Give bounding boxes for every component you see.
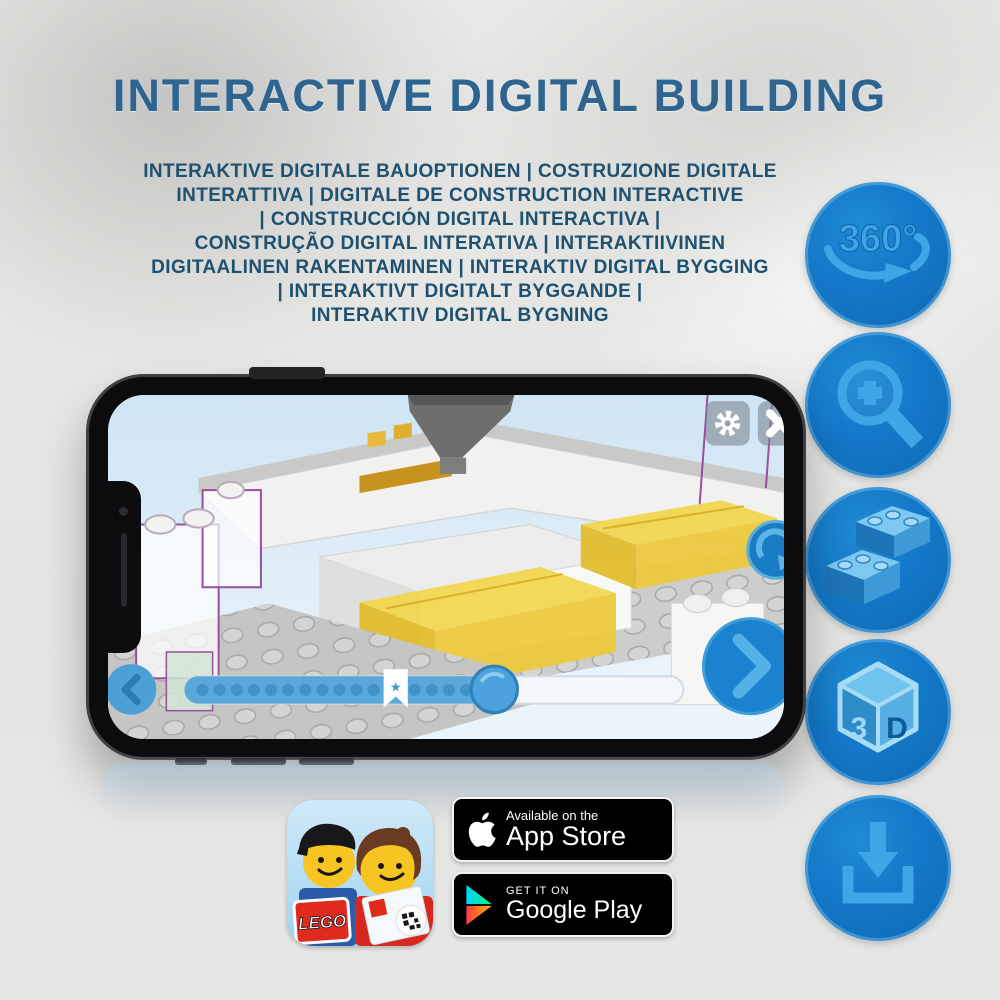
next-button[interactable] (704, 619, 784, 714)
lego-bricks-icon (818, 500, 938, 620)
subtitle-line: CONSTRUÇÃO DIGITAL INTERATIVA | INTERAKT… (110, 232, 810, 256)
subtitle-line: INTERAKTIVE DIGITALE BAUOPTIONEN | COSTR… (110, 160, 810, 184)
poster-canvas: INTERACTIVE DIGITAL BUILDING INTERAKTIVE… (0, 0, 1000, 1000)
zoom-in-icon (818, 345, 938, 465)
google-play-icon (454, 885, 506, 925)
rotate-360-icon: 360° (818, 195, 938, 315)
phone: ★ (86, 374, 806, 760)
feature-download (805, 795, 951, 941)
google-play-badge[interactable]: GET IT ON Google Play (452, 872, 674, 937)
lego-logo: LEGO (294, 898, 351, 944)
subtitle-line: INTERAKTIV DIGITAL BYGNING (110, 304, 810, 328)
feature-3d-view: 3 D (805, 639, 951, 785)
settings-button[interactable] (706, 401, 750, 446)
app-store-name: App Store (506, 822, 626, 850)
prev-button[interactable] (108, 664, 156, 715)
subtitle-line: DIGITAALINEN RAKENTAMINEN | INTERAKTIV D… (110, 256, 810, 280)
download-icon (818, 808, 938, 928)
lego-app-art: LEGO (287, 800, 433, 946)
phone-notch (108, 481, 141, 653)
feature-bricks (805, 487, 951, 633)
lego-app-icon[interactable]: LEGO (287, 800, 433, 946)
page-title: INTERACTIVE DIGITAL BUILDING (0, 70, 1000, 122)
phone-reflection (100, 762, 786, 820)
cube-d-label: D (886, 712, 908, 745)
close-button[interactable] (758, 401, 784, 446)
google-play-name: Google Play (506, 897, 642, 923)
speaker-icon (121, 533, 127, 607)
phone-power-button (249, 367, 325, 379)
cube-3d-icon: 3 D (818, 652, 938, 772)
subtitle-line: | INTERAKTIVT DIGITALT BYGGANDE | (110, 280, 810, 304)
rotation-degrees-label: 360° (839, 218, 918, 260)
star-icon: ★ (390, 680, 402, 695)
cube-3-label: 3 (851, 712, 868, 745)
subtitle-block: INTERAKTIVE DIGITALE BAUOPTIONEN | COSTR… (110, 160, 810, 328)
apple-icon (454, 810, 506, 850)
app-store-tagline: Available on the (506, 809, 626, 823)
subtitle-line: INTERATTIVA | DIGITALE DE CONSTRUCTION I… (110, 184, 810, 208)
app-store-badge[interactable]: Available on the App Store (452, 797, 674, 862)
subtitle-line: | CONSTRUCCIÓN DIGITAL INTERACTIVA | (110, 208, 810, 232)
feature-zoom (805, 332, 951, 478)
building-app-screen: ★ (108, 395, 784, 739)
phone-screen: ★ (108, 395, 784, 739)
lego-logo-text: LEGO (297, 911, 346, 933)
feature-360-rotation: 360° (805, 182, 951, 328)
camera-icon (119, 507, 128, 516)
